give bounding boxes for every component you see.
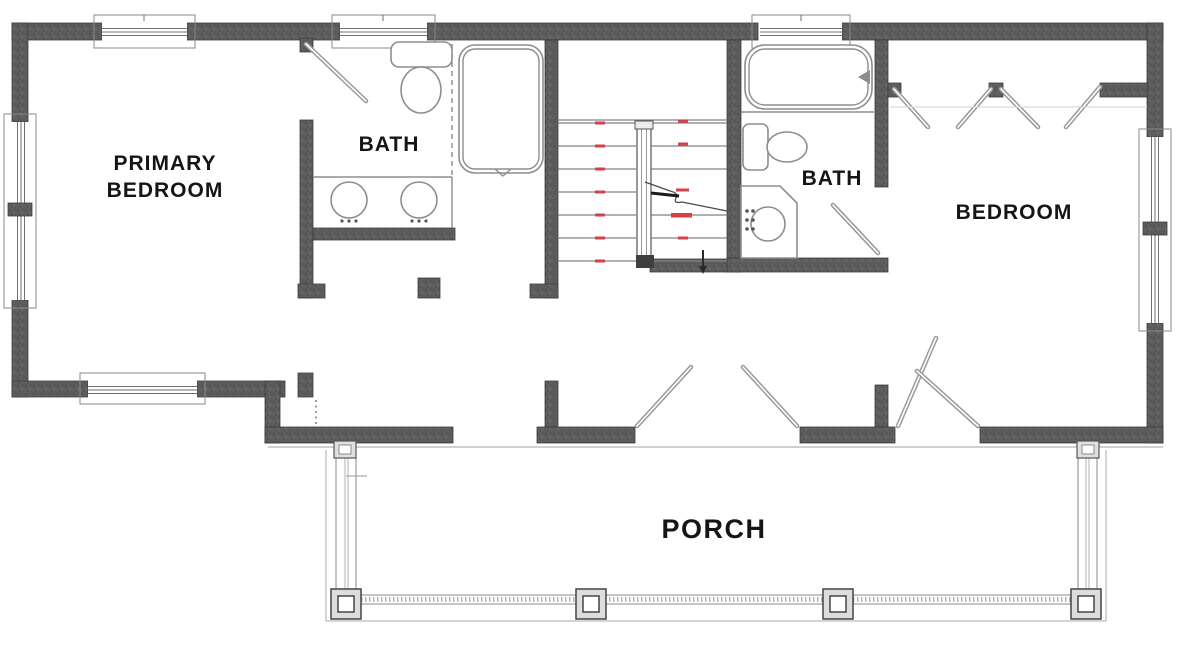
door-swing-icon [637, 367, 797, 426]
primary-bath-label: BATH [359, 133, 420, 156]
porch-post [1071, 589, 1101, 619]
porch-railing [337, 595, 1097, 604]
bathtub-icon [741, 45, 874, 112]
porch-railing [1078, 455, 1097, 593]
primary-bath-fixtures [313, 42, 543, 228]
window-icon [1139, 129, 1171, 331]
stair-break-line [645, 182, 727, 211]
door-swing-icon [898, 338, 978, 426]
shower-icon [459, 45, 543, 176]
window-icon [4, 114, 36, 308]
porch-railing [336, 457, 367, 593]
porch-post [334, 441, 356, 458]
toilet-icon [391, 42, 452, 113]
floor-plan-drawing: PRIMARY BEDROOM BATH BATH BEDROOM PORCH [0, 0, 1200, 647]
porch-post [331, 589, 361, 619]
primary-bedroom-label: PRIMARY [113, 152, 216, 175]
door-swing-icon [306, 44, 366, 101]
porch-label: PORCH [661, 514, 766, 544]
bedroom-label: BEDROOM [956, 201, 1073, 224]
window-icon [94, 15, 195, 48]
door-swing-icon [833, 205, 878, 253]
porch-post [576, 589, 606, 619]
room-labels: PRIMARY BEDROOM BATH BATH BEDROOM PORCH [107, 133, 1073, 544]
window-icon [80, 373, 205, 404]
hall-bath-label: BATH [802, 167, 863, 190]
laundry-sink-icon [741, 186, 797, 258]
toilet-icon [743, 124, 807, 170]
porch-post [1077, 441, 1099, 458]
staircase [558, 120, 727, 275]
floor-plan-page: PRIMARY BEDROOM BATH BATH BEDROOM PORCH [0, 0, 1200, 647]
porch-post [823, 589, 853, 619]
primary-bedroom-label: BEDROOM [107, 179, 224, 202]
window-icon [752, 15, 850, 48]
vanity-sinks-icon [313, 177, 452, 228]
